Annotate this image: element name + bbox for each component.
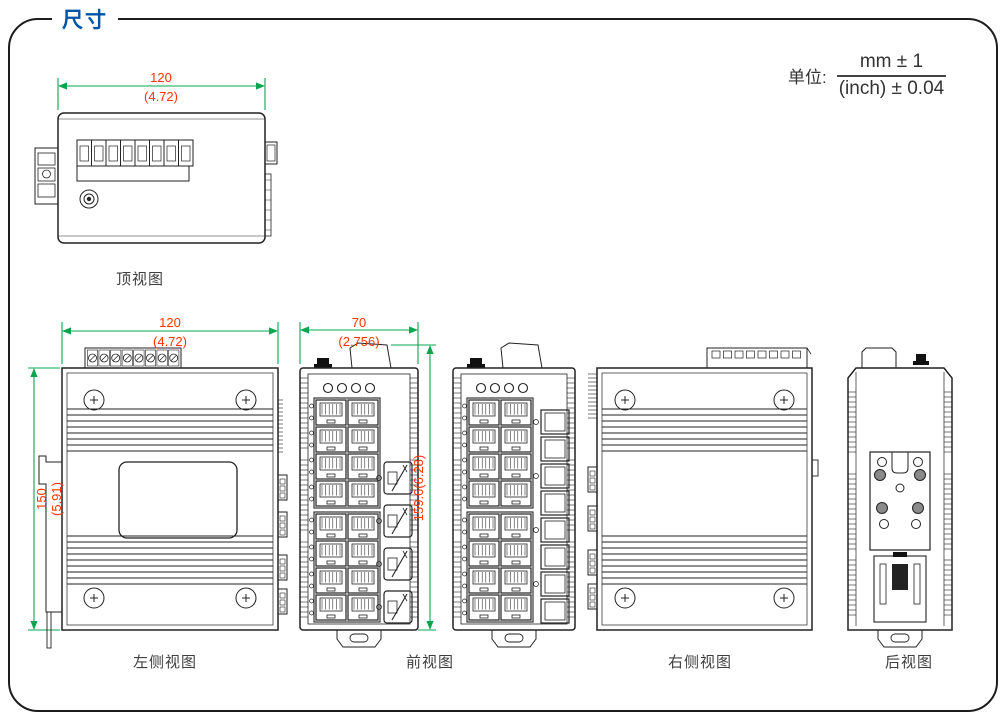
front-width-mm: 70 [352,315,366,330]
port-led [463,443,467,447]
port-led [463,584,467,588]
sfp-port [384,591,412,623]
rear-view-geometry [848,348,952,647]
rj45-port [348,454,378,479]
left-width-mm: 120 [159,315,181,330]
rj45-port [316,481,346,506]
corner-screw [236,588,256,608]
din-clip [874,552,926,622]
rj45-port [316,568,346,593]
port-led [463,557,467,561]
left-side-geometry [28,322,287,648]
rj45-port [501,427,531,452]
rj45-port [469,454,499,479]
dimension-arrow [58,82,67,89]
top-connector [862,348,896,368]
rj45-port [501,595,531,620]
right-side-view-drawing [585,312,825,672]
port-led [377,605,382,610]
left-width-inch: (4.72) [153,334,187,349]
status-led [477,384,486,393]
status-led [324,384,333,393]
rj45-port [316,541,346,566]
port-led [463,416,467,420]
dimension-arrow [256,82,265,89]
label-plate [119,462,237,538]
port-led [463,485,467,489]
din-mount-tab [492,630,536,647]
unit-note: 单位: mm ± 1 (inch) ± 0.04 [788,50,946,101]
antenna-button [916,354,926,361]
left-height-inch: (5.91) [49,482,64,516]
port-led [310,557,314,561]
rear-view-drawing [838,312,998,677]
rj45-port [501,400,531,425]
square-port [541,518,569,542]
antenna-button [317,358,329,365]
left-side-view-label: 左侧视图 [105,651,225,672]
port-led [463,530,467,534]
rj45-port [501,568,531,593]
port-led [463,470,467,474]
port-led [310,545,314,549]
front-height: 159.6(6.28) [411,455,426,522]
port-led [310,584,314,588]
rj45-port [316,514,346,539]
sfp-port [384,548,412,580]
port-led [310,497,314,501]
port-led [463,431,467,435]
rj45-port [501,454,531,479]
port-led [463,497,467,501]
rj45-port [501,514,531,539]
port-led [310,458,314,462]
rj45-port [348,514,378,539]
port-led [310,611,314,615]
port-led [310,416,314,420]
dimension-arrow [269,327,278,334]
corner-screw [84,390,104,410]
port-led [377,519,382,524]
square-port [541,491,569,515]
port-led [310,431,314,435]
port-led [310,572,314,576]
rj45-port [348,400,378,425]
left-side-view-drawing: 120 (4.72) 150 (5.91) [15,312,295,672]
port-led [463,404,467,408]
rj45-port [501,481,531,506]
port-led [463,518,467,522]
top-width-inch: (4.72) [144,89,178,104]
grounding-screw [80,190,98,208]
square-port [541,464,569,488]
port-led [534,528,539,533]
top-view-drawing: 120 (4.72) [25,58,290,258]
top-view-label: 顶视图 [80,268,200,289]
status-led [519,384,528,393]
square-port [541,599,569,623]
rj45-port [469,541,499,566]
page-title: 尺寸 [52,4,118,34]
side-connectors [588,374,597,609]
dimension-drawing-page: 尺寸 单位: mm ± 1 (inch) ± 0.04 120 (4.72) 顶… [0,0,1000,717]
din-mount-tab [337,630,381,647]
rj45-port [348,568,378,593]
dimension-arrow [300,326,309,333]
port-led [463,611,467,615]
port-led [310,485,314,489]
dimension-arrow [426,621,433,630]
corner-screw [615,588,635,608]
right-side-view-label: 右侧视图 [640,651,760,672]
side-tab [812,460,818,476]
port-led [310,470,314,474]
front-view-alt-drawing [445,312,595,677]
front-view-alt-geometry [453,343,575,647]
corner-screw [236,390,256,410]
port-led [377,476,382,481]
unit-mm-tolerance: mm ± 1 [837,50,946,77]
terminal-block [85,348,181,368]
status-led [491,384,500,393]
unit-label: 单位: [788,63,827,88]
right-side-geometry [588,348,818,630]
port-led [310,530,314,534]
rj45-port [316,595,346,620]
rj45-port [469,427,499,452]
din-mount-tab [878,630,922,647]
sfp-port [384,462,412,494]
rj45-port [316,427,346,452]
square-port [541,437,569,461]
unit-fraction: mm ± 1 (inch) ± 0.04 [837,50,946,101]
corner-screw [774,588,794,608]
square-port [541,545,569,569]
antenna-button [470,358,482,365]
din-clip-top [35,148,58,204]
front-view-drawing: 70 (2.756) 159.6(6.28) [290,312,445,677]
square-port [541,572,569,596]
corner-screw [615,390,635,410]
status-led [366,384,375,393]
port-led [463,458,467,462]
port-led [310,518,314,522]
port-led [463,572,467,576]
port-led [534,474,539,479]
dimension-arrow [62,327,71,334]
corner-screw [774,390,794,410]
rj45-port [316,454,346,479]
rj45-port [469,400,499,425]
clip-spring [892,564,908,590]
port-led [463,599,467,603]
side-connectors [278,400,287,614]
rj45-port [348,427,378,452]
dimension-arrow [409,326,418,333]
port-led [534,582,539,587]
port-led [377,562,382,567]
left-height-mm: 150 [34,488,49,510]
port-led [534,420,539,425]
unit-inch-tolerance: (inch) ± 0.04 [837,77,946,102]
rj45-port [469,595,499,620]
status-led [352,384,361,393]
port-led [310,443,314,447]
port-led [310,404,314,408]
rj45-port [348,595,378,620]
corner-screw [84,588,104,608]
status-led [338,384,347,393]
terminal-block [707,348,811,368]
front-width-inch: (2.756) [338,334,379,349]
side-connector [265,142,277,236]
port-led [463,545,467,549]
rj45-port [348,481,378,506]
dimension-arrow [426,345,433,354]
rj45-port [469,514,499,539]
rj45-port [501,541,531,566]
din-rail-plate [870,452,930,550]
rj45-port [469,568,499,593]
top-width-mm: 120 [150,70,172,85]
terminal-block [77,140,193,181]
top-connector [501,343,542,368]
dimension-arrow [30,368,37,377]
sfp-port [384,505,412,537]
dimension-arrow [30,621,37,630]
status-led [505,384,514,393]
port-led [310,599,314,603]
rj45-port [316,400,346,425]
rear-view-label: 后视图 [849,651,969,672]
rj45-port [348,541,378,566]
square-port [541,410,569,434]
rj45-port [469,481,499,506]
